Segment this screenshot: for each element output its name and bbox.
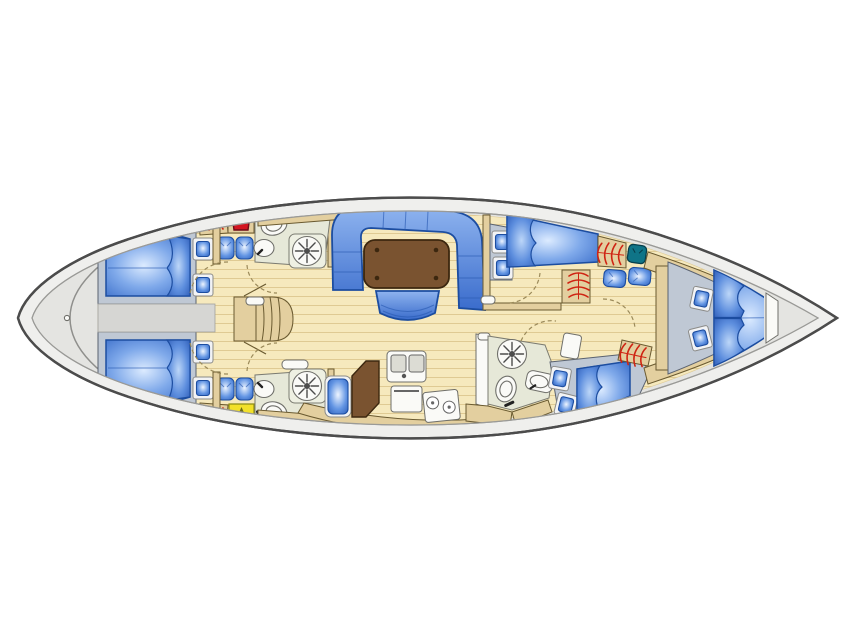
floor-hatch-handle	[282, 360, 308, 369]
shower-fan-icon	[293, 372, 322, 401]
wall-fwd-port	[483, 303, 561, 310]
yacht-layout-canvas	[0, 0, 850, 637]
hanging-locker-corridor	[562, 270, 590, 303]
yacht-layout-diagram	[0, 0, 850, 637]
drain-circle-icon	[64, 315, 69, 320]
seat-cushion-icon	[236, 378, 253, 400]
galley-fridge	[325, 376, 351, 417]
aft-wedge-port	[86, 233, 102, 249]
galley-sink	[387, 351, 426, 382]
cabin-seat	[560, 333, 582, 360]
shower-fan-icon	[498, 340, 527, 369]
salon-stool	[376, 291, 439, 320]
floor-hatch-handle	[246, 297, 264, 305]
hatch-window-icon	[193, 377, 213, 399]
hatch-window-icon	[193, 238, 213, 260]
vberth-wall	[656, 266, 668, 370]
hatch-window-icon	[193, 341, 213, 363]
hatch-window-icon	[548, 366, 572, 391]
seat-cushion-icon	[603, 269, 626, 288]
teal-seat	[627, 244, 647, 264]
engine-compartment	[98, 304, 215, 332]
hatch-window-icon	[193, 274, 213, 296]
fwd-pillow-port	[507, 214, 536, 267]
seat-cushion-icon	[236, 237, 253, 259]
aft-wedge-starboard	[86, 387, 102, 403]
sink-icon	[254, 240, 274, 257]
galley-oven	[391, 386, 422, 412]
door-handle	[481, 296, 495, 304]
galley-stove	[423, 389, 461, 422]
shower-fan-icon	[293, 237, 322, 266]
bow-anchor-locker	[766, 293, 778, 343]
saloon-table	[364, 240, 449, 288]
head-forward-starboard	[466, 333, 555, 426]
hatch-window-icon	[689, 286, 713, 312]
sink-icon	[254, 381, 274, 398]
